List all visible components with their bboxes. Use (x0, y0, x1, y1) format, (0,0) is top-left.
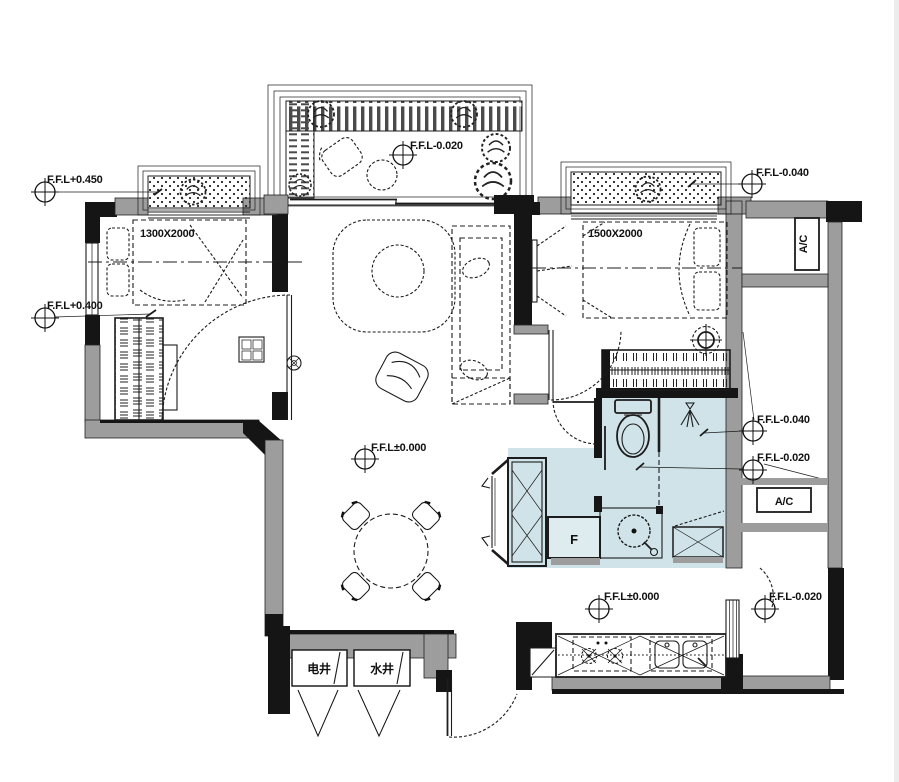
electric-shaft-label: 电井 (307, 661, 331, 676)
ffl-label: F.F.L±0.000 (371, 442, 426, 454)
coffee-table-icon (372, 245, 424, 297)
tv-icon (532, 226, 572, 316)
dining-set (339, 499, 443, 603)
shaft-door-swing (358, 690, 400, 736)
nightstand-icon (239, 337, 264, 362)
datum-living: F.F.L±0.000 (351, 442, 426, 473)
bed-right-dimension: 1500X2000 (588, 228, 643, 240)
plant-icon (475, 163, 511, 199)
floor-plan-canvas: F A/C (0, 0, 899, 782)
service-area: A/C A/C (740, 218, 828, 532)
ffl-label: F.F.L-0.020 (410, 140, 463, 152)
chair-icon (410, 570, 443, 603)
rug-outline (333, 220, 455, 332)
armchair-icon (372, 349, 431, 406)
bay-window-right (561, 162, 731, 219)
fridge-label: F (570, 532, 578, 547)
chair-icon (339, 570, 372, 603)
terrace-table-icon (367, 160, 397, 190)
bedroom-right (532, 222, 742, 400)
water-shaft: 水井 (354, 650, 410, 736)
datum-terrace: F.F.L-0.020 (389, 140, 463, 169)
ac-side-label: A/C (775, 496, 794, 508)
vanity-bay (482, 458, 546, 566)
ffl-label: F.F.L-0.020 (769, 591, 822, 603)
page-edge (894, 0, 899, 782)
ffl-label: F.F.L-0.040 (756, 167, 809, 179)
chair-icon (339, 499, 372, 532)
terrace (264, 85, 534, 214)
entry-hall-door (726, 568, 773, 658)
datum-entry: F.F.L-0.020 (751, 591, 822, 623)
ac-top-label: A/C (798, 235, 810, 254)
walls (85, 197, 862, 714)
entry-door-swing (449, 694, 517, 737)
electric-shaft: 电井 (292, 650, 347, 736)
dining-table-icon (354, 514, 428, 588)
kitchen (530, 634, 726, 677)
sofa-icon (452, 226, 510, 404)
ffl-label: F.F.L+0.400 (47, 300, 103, 312)
ffl-label: F.F.L±0.000 (604, 591, 659, 603)
water-shaft-label: 水井 (370, 661, 394, 676)
ffl-label: F.F.L+0.450 (47, 174, 103, 186)
drain-icon (287, 356, 301, 370)
chair-icon (410, 499, 443, 532)
floor-plan-svg: F A/C (0, 0, 899, 782)
fridge: F (548, 517, 600, 565)
ffl-label: F.F.L-0.040 (757, 414, 810, 426)
shafts: 电井 水井 (292, 650, 410, 736)
datum-kitchen: F.F.L±0.000 (585, 591, 659, 623)
shaft-door-swing (298, 690, 338, 736)
plant-icon (482, 134, 510, 162)
door-bathroom (553, 400, 597, 444)
terrace-chair-icon (314, 130, 365, 180)
bed-left-dimension: 1300X2000 (140, 228, 195, 240)
ffl-label: F.F.L-0.020 (757, 452, 810, 464)
